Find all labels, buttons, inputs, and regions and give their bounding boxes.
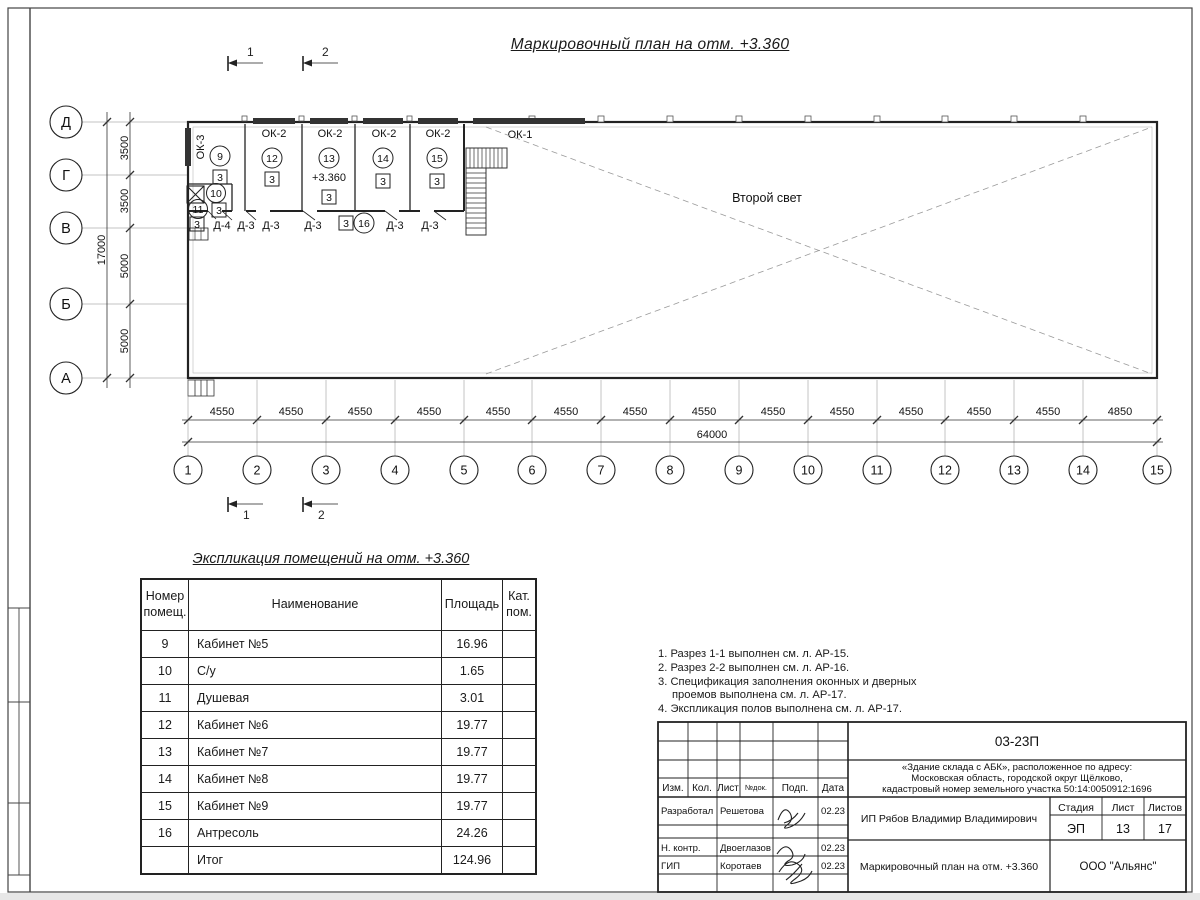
table-header-row: Номер помещ. Наименование Площадь Кат. п… <box>141 579 536 631</box>
header-text: помещ. <box>143 605 186 619</box>
cell-category <box>503 658 537 685</box>
dim-label: 5000 <box>119 329 131 353</box>
dim-label: 3500 <box>119 189 131 213</box>
section-mark-label: 1 <box>243 508 250 522</box>
explication-title: Экспликация помещений на отм. +3.360 <box>140 551 522 567</box>
room-cat: 3 <box>380 176 386 188</box>
door-label: Д-3 <box>386 220 403 232</box>
axis-label: В <box>61 221 71 237</box>
dim-label: 3500 <box>119 136 131 160</box>
note-line: 1. Разрез 1-1 выполнен см. л. АР-15. <box>658 648 917 662</box>
door-leaves <box>208 211 446 220</box>
axis-label: 5 <box>461 464 468 478</box>
second-light-area: Второй свет <box>486 127 1152 374</box>
room-number: 13 <box>323 153 335 165</box>
cell-area: 16.96 <box>442 631 503 658</box>
signatures <box>777 810 812 884</box>
second-light-label: Второй свет <box>732 191 802 205</box>
bay-dim: 4550 <box>1036 406 1060 418</box>
bay-dim: 4550 <box>554 406 578 418</box>
cell-area: 19.77 <box>442 739 503 766</box>
bay-dim: 4550 <box>348 406 372 418</box>
header-area: Площадь <box>442 579 503 631</box>
axis-label: 12 <box>938 464 952 478</box>
room-cat: 3 <box>434 176 440 188</box>
tb-date: 02.23 <box>821 806 845 817</box>
door-label: Д-3 <box>421 220 438 232</box>
table-row: 13 Кабинет №7 19.77 <box>141 739 536 766</box>
tb-sheet: 13 <box>1116 822 1130 836</box>
cell-name: Кабинет №7 <box>189 739 442 766</box>
page-title: Маркировочный план на отм. +3.360 <box>400 36 900 54</box>
cell-number: 14 <box>141 766 189 793</box>
object-line: Московская область, городской округ Щёлк… <box>911 773 1123 784</box>
section-marks-top: 1 2 <box>228 45 338 71</box>
table-total-row: Итог 124.96 <box>141 847 536 875</box>
section-mark-label: 2 <box>322 45 329 59</box>
bay-dim: 4550 <box>761 406 785 418</box>
axis-label: Б <box>61 297 71 313</box>
cell-category <box>503 766 537 793</box>
cell-name: Кабинет №8 <box>189 766 442 793</box>
cell-name: Кабинет №5 <box>189 631 442 658</box>
cell-number: 12 <box>141 712 189 739</box>
bay-dim: 4550 <box>417 406 441 418</box>
horizontal-dimensions: 4550 4550 4550 4550 4550 4550 4550 4550 … <box>182 406 1163 446</box>
cell-number: 15 <box>141 793 189 820</box>
dim-label: 5000 <box>119 254 131 278</box>
axis-label: 10 <box>801 464 815 478</box>
elevation-mark: +3.360 <box>312 172 346 184</box>
door-label: Д-3 <box>304 220 321 232</box>
tb-name: Коротаев <box>720 861 761 872</box>
room-number: 15 <box>431 153 443 165</box>
cell-number: 9 <box>141 631 189 658</box>
tb-col-header: Лист <box>717 783 739 794</box>
tb-col-header: №док. <box>745 783 767 792</box>
note-line: 4. Экспликация полов выполнена см. л. АР… <box>658 703 917 717</box>
window-label-ok3: ОК-3 <box>195 135 207 160</box>
bay-dim: 4550 <box>486 406 510 418</box>
axis-label: 2 <box>254 464 261 478</box>
axis-label: Д <box>61 115 71 131</box>
header-text: Кат. <box>508 589 530 603</box>
header-text: пом. <box>506 605 532 619</box>
doc-number: 03-23П <box>995 734 1039 749</box>
tb-client: ИП Рябов Владимир Владимирович <box>861 813 1037 825</box>
tb-role: Разработал <box>661 806 713 817</box>
cell-area: 19.77 <box>442 766 503 793</box>
tb-name: Двоеглазов <box>720 843 771 854</box>
bay-dim: 4550 <box>623 406 647 418</box>
cell-name: С/у <box>189 658 442 685</box>
room-number: 12 <box>266 153 278 165</box>
tb-sheet-label: Лист <box>1112 802 1135 814</box>
table-row: 10 С/у 1.65 <box>141 658 536 685</box>
cell-category <box>503 631 537 658</box>
window-label-ok1: ОК-1 <box>508 129 533 141</box>
bay-dim: 4550 <box>830 406 854 418</box>
filing-margin-cells <box>8 608 30 875</box>
cell-area: 19.77 <box>442 793 503 820</box>
bay-dim: 4550 <box>692 406 716 418</box>
room-number: 9 <box>217 151 223 163</box>
door-label: Д-4 <box>213 220 230 232</box>
cell-total-label: Итог <box>189 847 442 875</box>
room-number: 10 <box>210 188 222 200</box>
header-name: Наименование <box>189 579 442 631</box>
cell-category <box>503 820 537 847</box>
window-ok1-bar <box>473 118 585 124</box>
cell-category <box>503 712 537 739</box>
note-line: проемов выполнена см. л. АР-17. <box>658 689 917 703</box>
window-ok3-bar <box>185 128 191 166</box>
explication-table: Номер помещ. Наименование Площадь Кат. п… <box>140 578 537 875</box>
cell-number <box>141 847 189 875</box>
tb-role: ГИП <box>661 861 680 872</box>
window-label-ok2: ОК-2 <box>372 128 397 140</box>
cell-name: Душевая <box>189 685 442 712</box>
cell-name: Кабинет №9 <box>189 793 442 820</box>
room-number: 11 <box>193 204 204 216</box>
table-row: 16 Антресоль 24.26 <box>141 820 536 847</box>
tb-sheets-label: Листов <box>1148 802 1183 814</box>
tb-col-header: Подп. <box>782 783 809 794</box>
room-cat: 3 <box>217 172 223 184</box>
tb-name: Решетова <box>720 806 765 817</box>
table-row: 9 Кабинет №5 16.96 <box>141 631 536 658</box>
axis-label: 7 <box>598 464 605 478</box>
exterior-steps <box>188 380 214 396</box>
door-label: Д-3 <box>237 220 254 232</box>
cell-number: 11 <box>141 685 189 712</box>
cell-category <box>503 685 537 712</box>
header-room-number: Номер помещ. <box>141 579 189 631</box>
stairs <box>466 148 507 235</box>
tb-col-header: Изм. <box>662 783 683 794</box>
cell-category <box>503 847 537 875</box>
window-label-ok2: ОК-2 <box>262 128 287 140</box>
table-row: 11 Душевая 3.01 <box>141 685 536 712</box>
axis-label: А <box>61 371 71 387</box>
axis-label: 1 <box>185 464 192 478</box>
room-cat: 3 <box>269 174 275 186</box>
axis-label: 3 <box>323 464 330 478</box>
object-line: кадастровый номер земельного участка 50:… <box>882 784 1152 795</box>
cell-area: 19.77 <box>442 712 503 739</box>
tb-sheets: 17 <box>1158 822 1172 836</box>
axis-label: 4 <box>392 464 399 478</box>
table-row: 12 Кабинет №6 19.77 <box>141 712 536 739</box>
room-cat: 3 <box>326 192 332 204</box>
tb-stage: ЭП <box>1067 822 1085 836</box>
sheet-edge-shade <box>0 893 1200 900</box>
note-line: 3. Спецификация заполнения оконных и две… <box>658 676 917 690</box>
tb-date: 02.23 <box>821 861 845 872</box>
axis-label: Г <box>62 168 70 184</box>
dim-total-label: 17000 <box>96 235 108 266</box>
window-label-ok2: ОК-2 <box>318 128 343 140</box>
cell-total-area: 124.96 <box>442 847 503 875</box>
bay-dim: 4550 <box>210 406 234 418</box>
title-block: 03-23П «Здание склада с АБК», расположен… <box>658 722 1186 892</box>
drawing-sheet: 1 2 1 2 Д Г В Б А <box>0 0 1200 900</box>
bay-dim: 4550 <box>899 406 923 418</box>
bay-dim: 4550 <box>967 406 991 418</box>
tb-stage-label: Стадия <box>1058 802 1094 814</box>
column-axes: 1 2 3 4 5 6 7 8 9 10 11 12 13 14 15 <box>174 456 1171 484</box>
table-row: 14 Кабинет №8 19.77 <box>141 766 536 793</box>
axis-label: 9 <box>736 464 743 478</box>
tb-col-header: Дата <box>822 783 845 794</box>
object-line: «Здание склада с АБК», расположенное по … <box>902 762 1132 773</box>
table-row: 15 Кабинет №9 19.77 <box>141 793 536 820</box>
tb-company: ООО "Альянс" <box>1080 861 1157 873</box>
room-number: 14 <box>377 153 389 165</box>
axis-label: 11 <box>871 464 884 478</box>
tb-role: Н. контр. <box>661 843 701 854</box>
cell-name: Антресоль <box>189 820 442 847</box>
room-cat: 3 <box>216 205 222 217</box>
cell-area: 3.01 <box>442 685 503 712</box>
section-mark-label: 1 <box>247 45 254 59</box>
cell-name: Кабинет №6 <box>189 712 442 739</box>
header-category: Кат. пом. <box>503 579 537 631</box>
room-number: 16 <box>358 218 370 230</box>
axis-label: 13 <box>1007 464 1021 478</box>
cell-area: 24.26 <box>442 820 503 847</box>
axis-label: 15 <box>1150 464 1164 478</box>
room-cat: 3 <box>343 218 349 230</box>
tb-col-header: Кол. <box>692 783 712 794</box>
cell-number: 16 <box>141 820 189 847</box>
note-line: 2. Разрез 2-2 выполнен см. л. АР-16. <box>658 662 917 676</box>
header-text: Номер <box>146 589 184 603</box>
axis-label: 14 <box>1076 464 1090 478</box>
vertical-dimensions: 3500 3500 5000 5000 17000 <box>96 112 134 388</box>
section-marks-bottom: 1 2 <box>228 497 338 522</box>
cell-category <box>503 739 537 766</box>
tb-date: 02.23 <box>821 843 845 854</box>
cell-number: 10 <box>141 658 189 685</box>
axis-label: 8 <box>667 464 674 478</box>
axis-label: 6 <box>529 464 536 478</box>
cell-number: 13 <box>141 739 189 766</box>
door-label: Д-3 <box>262 220 279 232</box>
cell-category <box>503 793 537 820</box>
room-cat: 3 <box>194 219 200 231</box>
cell-area: 1.65 <box>442 658 503 685</box>
notes-block: 1. Разрез 1-1 выполнен см. л. АР-15. 2. … <box>658 648 917 717</box>
door-labels: Д-4 Д-3 Д-3 Д-3 Д-3 Д-3 <box>213 220 438 232</box>
window-label-ok2: ОК-2 <box>426 128 451 140</box>
section-mark-label: 2 <box>318 508 325 522</box>
tb-drawing-title: Маркировочный план на отм. +3.360 <box>860 861 1038 873</box>
bay-dim: 4850 <box>1108 406 1132 418</box>
total-dim: 64000 <box>697 429 728 441</box>
bay-dim: 4550 <box>279 406 303 418</box>
